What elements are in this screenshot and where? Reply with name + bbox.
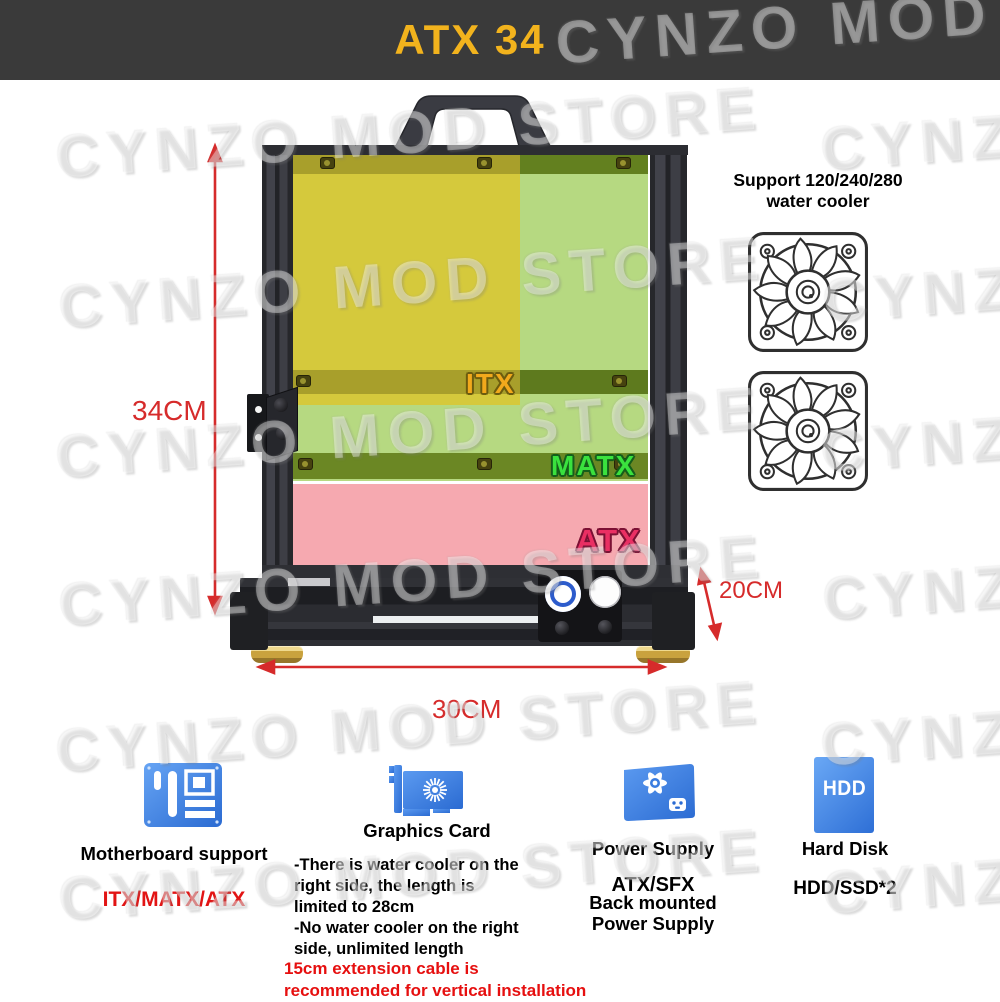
graphics-warning: 15cm extension cable is recommended for … xyxy=(284,958,664,1002)
depth-dimension: 20CM xyxy=(719,577,783,605)
fan-icon xyxy=(747,370,869,492)
hard-disk-icon: HDD xyxy=(814,757,874,833)
cooler-support-title: Support 120/240/280 water cooler xyxy=(712,170,924,212)
graphics-card-icon xyxy=(388,764,466,822)
power-title: Power Supply xyxy=(572,838,734,860)
storage-value: HDD/SSD*2 xyxy=(788,878,902,900)
product-infographic: { "banner": { "title": "ATX 34" }, "wate… xyxy=(0,0,1000,1000)
hdd-badge-label: HDD xyxy=(822,777,865,801)
power-mount: Back mounted Power Supply xyxy=(562,892,744,934)
width-dimension: 30CM xyxy=(432,694,501,725)
motherboard-value: ITX/MATX/ATX xyxy=(60,888,288,912)
graphics-notes: -There is water cooler on the right side… xyxy=(294,855,594,960)
motherboard-icon xyxy=(143,762,223,828)
height-dimension: 34CM xyxy=(132,395,207,427)
storage-title: Hard Disk xyxy=(795,838,895,860)
fan-icon xyxy=(747,231,869,353)
motherboard-title: Motherboard support xyxy=(60,843,288,865)
power-supply-icon xyxy=(618,758,698,826)
graphics-title: Graphics Card xyxy=(347,820,507,842)
depth-arrow-line xyxy=(704,582,714,625)
